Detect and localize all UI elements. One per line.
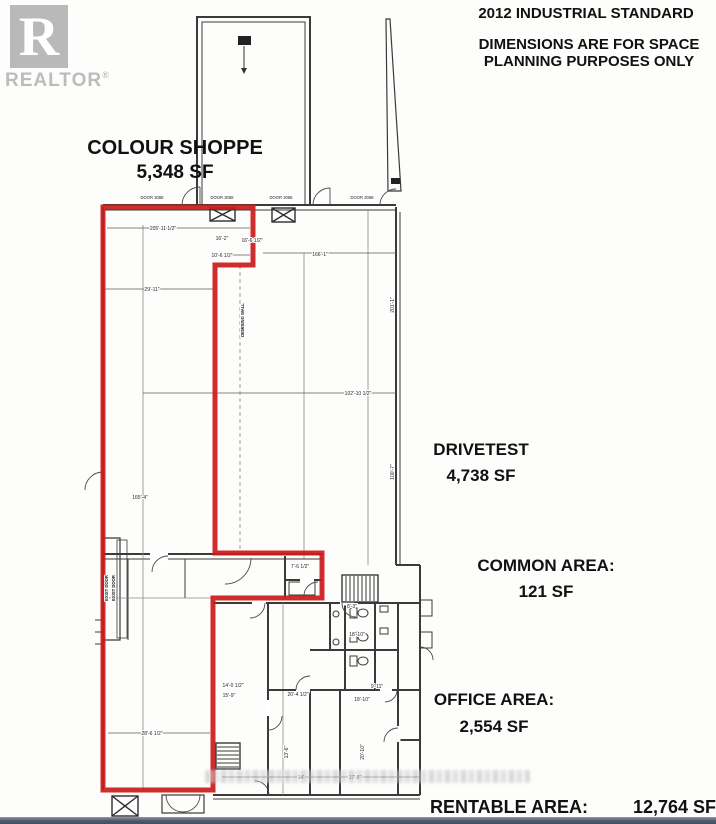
dim-label: 7'-6 1/2" bbox=[291, 564, 310, 570]
footer-bar bbox=[0, 817, 716, 824]
dim-label: 16'-2" bbox=[216, 236, 229, 242]
dim-label: 100'-7" bbox=[390, 464, 396, 480]
door-openings bbox=[150, 554, 398, 742]
drivetest-size: 4,738 SF bbox=[447, 466, 516, 486]
building-walls bbox=[95, 17, 420, 799]
door-label: DOOR 3068 bbox=[269, 195, 293, 200]
note-label: EXIST DOOR bbox=[111, 575, 116, 601]
dim-label: 205'-11 1/2" bbox=[150, 226, 176, 232]
dim-label: 16'-6 1/2" bbox=[241, 238, 262, 244]
dim-label: 28'-6 1/2" bbox=[141, 731, 162, 737]
rentable-area-label: RENTABLE AREA: bbox=[430, 797, 588, 818]
dim-label: 13'-6" bbox=[284, 745, 290, 758]
dim-label: 8'-3" bbox=[347, 604, 357, 610]
dimensions-note-line1: DIMENSIONS ARE FOR SPACE bbox=[479, 36, 700, 53]
dim-label: 20'-10" bbox=[360, 744, 366, 760]
common-area-size: 121 SF bbox=[519, 582, 574, 602]
standard-note: 2012 INDUSTRIAL STANDARD bbox=[478, 5, 693, 22]
grid-lines bbox=[143, 210, 368, 790]
dim-label: 15'-9" bbox=[223, 693, 236, 699]
dim-label: 14'-0 1/2" bbox=[222, 683, 243, 689]
dim-label: 102'-10 1/2" bbox=[345, 391, 372, 397]
registered-mark: ® bbox=[102, 70, 110, 80]
office-area-label: OFFICE AREA: bbox=[434, 690, 554, 710]
door-label: DOOR 3068 bbox=[350, 195, 374, 200]
note-label: DEMISING WALL bbox=[240, 303, 245, 337]
watermark bbox=[205, 770, 530, 783]
dim-label: 18'-10" bbox=[354, 697, 370, 703]
rentable-area-size: 12,764 SF bbox=[633, 797, 716, 818]
colour-shoppe-size: 5,348 SF bbox=[136, 162, 213, 184]
floor-plan-page: 205'-11 1/2"16'-2"16'-6 1/2"10'-6 1/2"16… bbox=[0, 0, 716, 824]
dim-label: 9'-11" bbox=[371, 684, 384, 690]
realtor-wordmark: REALTOR® bbox=[5, 70, 110, 92]
door-label: DOOR 3068 bbox=[140, 195, 164, 200]
dim-label: 29'-11" bbox=[144, 287, 159, 293]
office-area-size: 2,554 SF bbox=[460, 717, 529, 737]
dim-label: 201'-1" bbox=[390, 297, 396, 313]
drivetest-label: DRIVETEST bbox=[433, 440, 528, 460]
dimension-lines bbox=[103, 228, 420, 777]
dimension-text-layer: 205'-11 1/2"16'-2"16'-6 1/2"10'-6 1/2"16… bbox=[104, 195, 396, 781]
note-label: EXIST DOOR bbox=[104, 575, 109, 601]
dim-label: 165'-4" bbox=[132, 495, 148, 501]
dim-label: 18'-10" bbox=[349, 632, 365, 638]
dim-label: 166'-1" bbox=[312, 252, 328, 258]
dim-label: 20'-4 1/2" bbox=[287, 692, 308, 698]
common-area-label: COMMON AREA: bbox=[477, 556, 614, 576]
roof-drain-marker bbox=[238, 36, 400, 184]
realtor-logo: R bbox=[10, 5, 68, 68]
colour-shoppe-label: COLOUR SHOPPE bbox=[87, 137, 263, 160]
dim-label: 10'-6 1/2" bbox=[211, 253, 232, 259]
dimensions-note-line2: PLANNING PURPOSES ONLY bbox=[484, 53, 694, 70]
door-label: DOOR 3068 bbox=[210, 195, 234, 200]
realtor-logo-letter: R bbox=[19, 9, 59, 65]
floor-plan-drawing: 205'-11 1/2"16'-2"16'-6 1/2"10'-6 1/2"16… bbox=[0, 0, 716, 824]
